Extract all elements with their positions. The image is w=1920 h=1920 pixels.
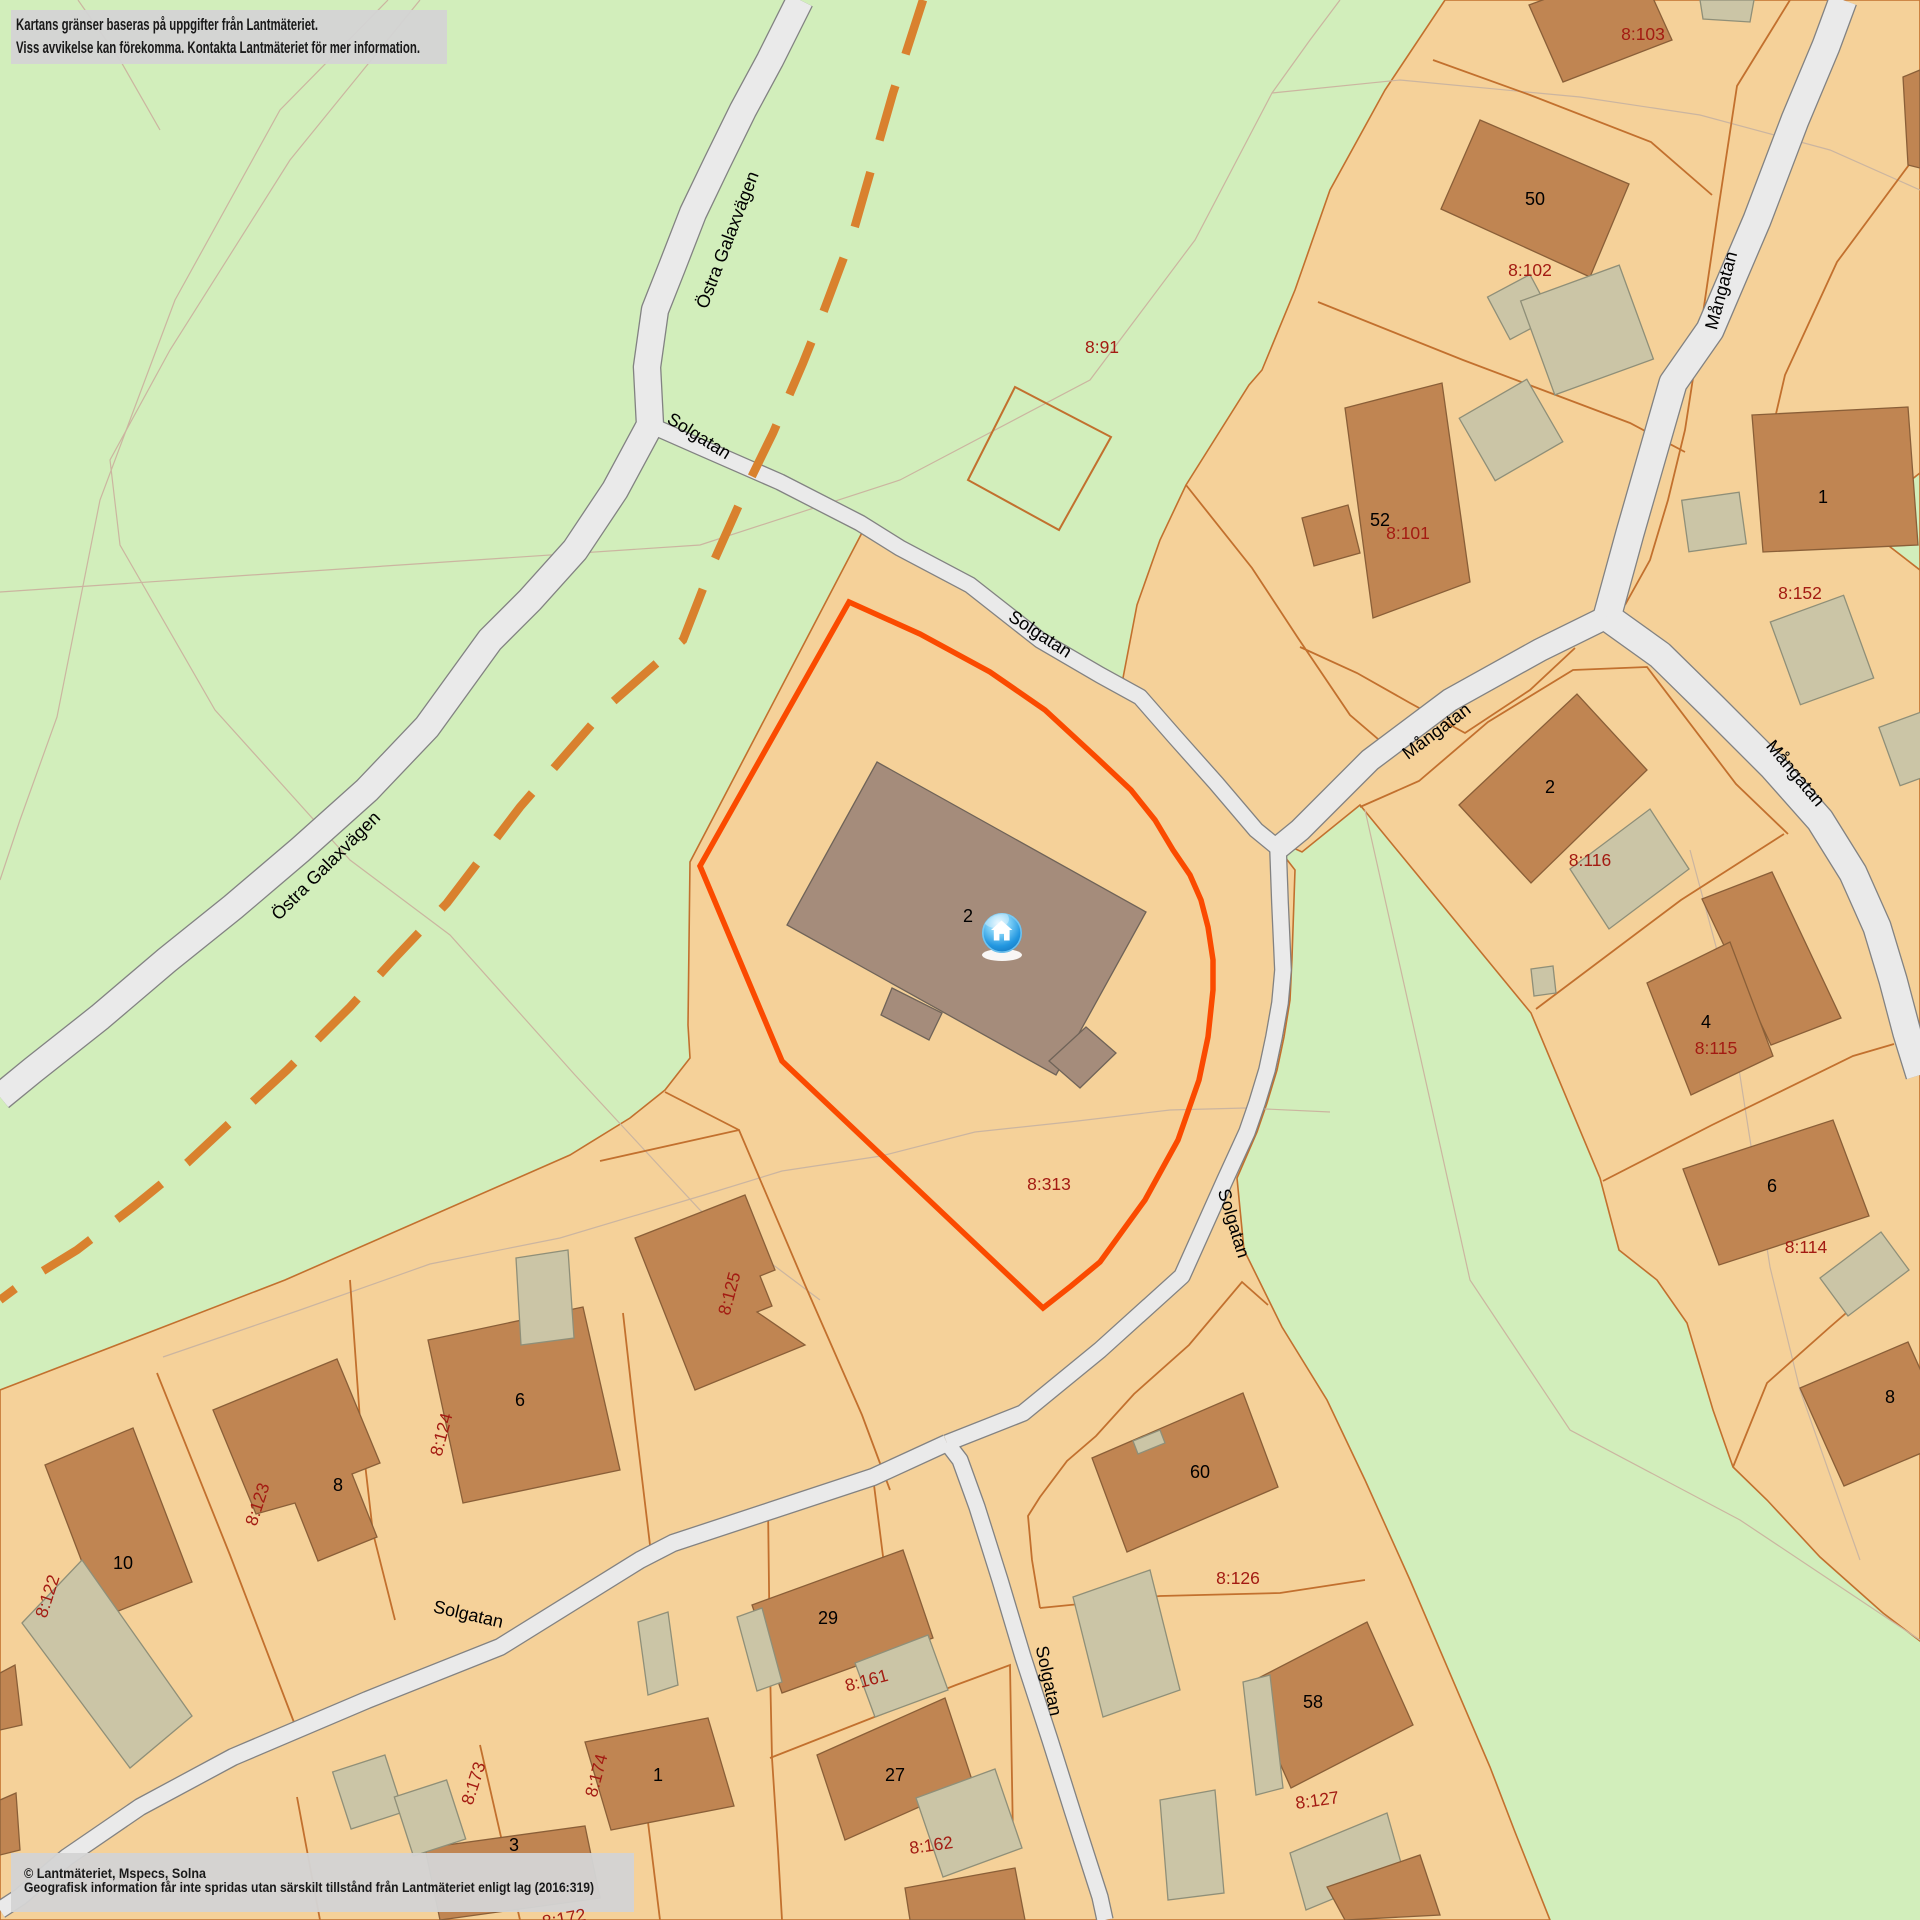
svg-text:52: 52	[1370, 510, 1390, 530]
svg-text:58: 58	[1303, 1692, 1323, 1712]
svg-text:2: 2	[1545, 777, 1555, 797]
svg-text:6: 6	[515, 1390, 525, 1410]
svg-text:29: 29	[818, 1608, 838, 1628]
svg-text:8:114: 8:114	[1785, 1237, 1828, 1257]
svg-text:8:102: 8:102	[1508, 260, 1552, 280]
svg-text:8:152: 8:152	[1778, 583, 1822, 603]
svg-text:Geografisk information får int: Geografisk information får inte spridas …	[24, 1880, 594, 1895]
svg-text:10: 10	[113, 1553, 133, 1573]
svg-text:8:115: 8:115	[1695, 1038, 1738, 1058]
svg-text:60: 60	[1190, 1462, 1210, 1482]
svg-text:© Lantmäteriet, Mspecs, Solna: © Lantmäteriet, Mspecs, Solna	[24, 1866, 206, 1881]
svg-text:2: 2	[963, 906, 973, 926]
svg-text:8:91: 8:91	[1085, 337, 1119, 357]
svg-text:8:101: 8:101	[1386, 523, 1430, 543]
svg-text:1: 1	[1818, 487, 1828, 507]
svg-text:8:116: 8:116	[1569, 850, 1612, 870]
svg-text:8:313: 8:313	[1027, 1174, 1071, 1194]
svg-text:8:126: 8:126	[1216, 1568, 1260, 1588]
svg-text:Kartans gränser baseras på upp: Kartans gränser baseras på uppgifter frå…	[16, 15, 318, 34]
svg-text:Viss avvikelse kan förekomma.: Viss avvikelse kan förekomma. Kontakta L…	[16, 38, 420, 57]
svg-text:8:103: 8:103	[1621, 24, 1665, 44]
svg-text:1: 1	[653, 1765, 663, 1785]
svg-text:50: 50	[1525, 189, 1545, 209]
svg-text:6: 6	[1767, 1176, 1777, 1196]
svg-text:4: 4	[1701, 1012, 1711, 1032]
svg-text:8: 8	[1885, 1387, 1895, 1407]
svg-text:27: 27	[885, 1765, 905, 1785]
svg-text:8: 8	[333, 1475, 343, 1495]
svg-text:3: 3	[509, 1835, 519, 1855]
